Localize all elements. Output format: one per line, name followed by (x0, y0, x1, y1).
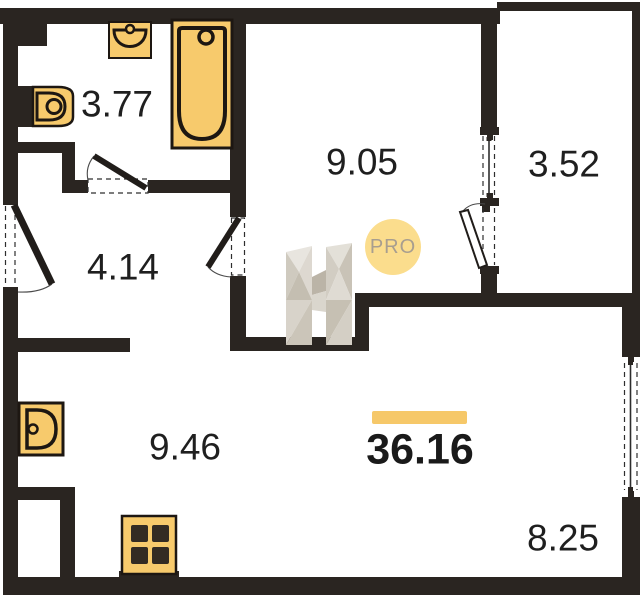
floor-plan: 3.77 9.05 3.52 4.14 9.46 8.25 36.16 PRO (0, 0, 641, 600)
h-logo (286, 243, 352, 345)
area-label-hallway: 4.14 (87, 249, 159, 286)
pro-badge-label: PRO (365, 219, 421, 275)
opening-dashes (6, 136, 638, 490)
stove-icon (122, 516, 176, 574)
washbasin-icon (109, 22, 151, 58)
area-label-kitchen: 9.46 (149, 429, 221, 466)
kitchen-sink-icon (19, 403, 63, 455)
toilet-icon (33, 87, 73, 126)
area-label-bathroom: 3.77 (81, 86, 153, 123)
area-label-room: 9.05 (326, 144, 398, 181)
total-area-label: 36.16 (366, 429, 474, 472)
balcony-window (487, 137, 492, 197)
area-label-living-room: 8.25 (527, 520, 599, 557)
living-room-window (628, 361, 633, 491)
bathtub-icon (172, 20, 232, 148)
entrance-door (14, 205, 52, 292)
bathroom-door (87, 156, 146, 188)
room-door (208, 218, 239, 277)
area-label-balcony: 3.52 (528, 146, 600, 183)
total-area-underline (372, 411, 467, 424)
